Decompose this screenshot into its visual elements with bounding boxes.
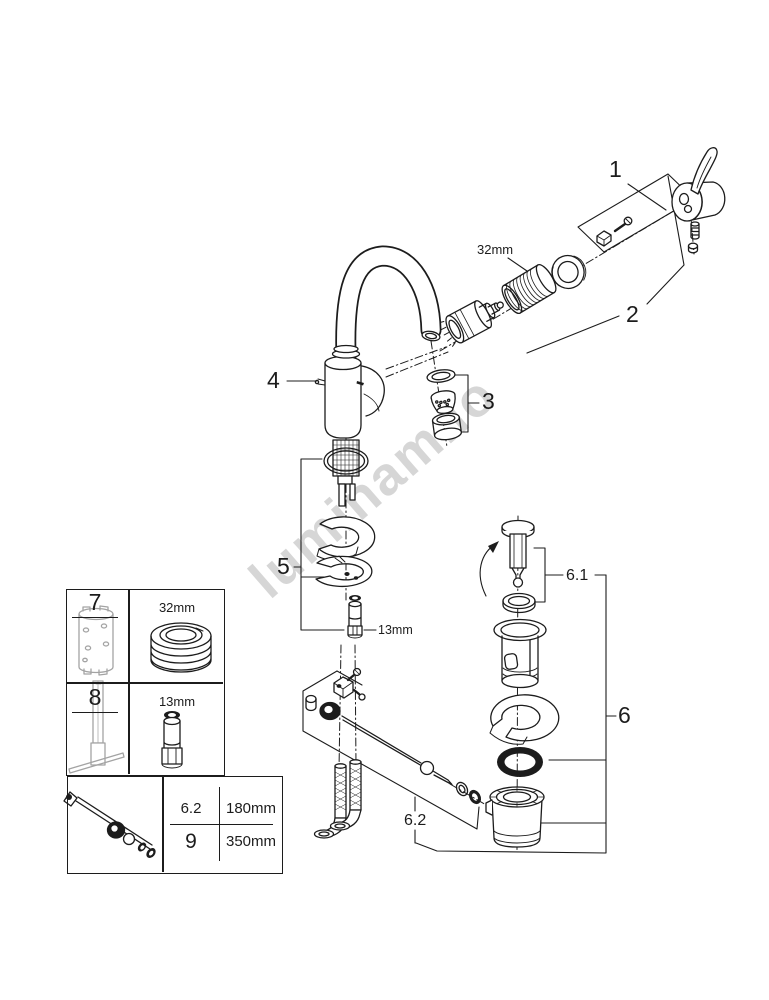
handle-cap-nut (689, 243, 698, 253)
cartridge (437, 290, 510, 348)
faucet-body (315, 256, 440, 438)
popup-plug (480, 521, 534, 597)
callout-3: 3 (482, 390, 495, 413)
exploded-parts-diagram: luminam.io (0, 0, 769, 1000)
aerator-parts (426, 368, 462, 441)
length-ref-6-2: 6.2 (166, 801, 216, 816)
tool-8-size: 13mm (132, 695, 222, 708)
fixing-screw-and-nut (597, 217, 632, 246)
supply-hoses (315, 760, 362, 838)
popup-rod-assembly (306, 669, 484, 807)
callout-1: 1 (609, 158, 622, 181)
callout-6: 6 (618, 704, 631, 727)
drain-lower-body (486, 787, 544, 847)
drain-o-ring (497, 747, 543, 777)
size-label-32mm: 32mm (477, 243, 513, 256)
plug-seal-ring (503, 594, 535, 613)
callout-4: 4 (267, 369, 280, 392)
callout-2: 2 (624, 303, 641, 326)
tool-7-size: 32mm (132, 601, 222, 614)
length-value-350mm: 350mm (226, 834, 276, 849)
length-ref-9: 9 (166, 831, 216, 852)
size-label-13mm: 13mm (378, 624, 413, 637)
rotation-arrow (480, 543, 497, 596)
callout-5: 5 (277, 555, 290, 578)
tool-7-number: 7 (72, 591, 118, 618)
mounting-parts (316, 440, 375, 638)
tool-8-number: 8 (72, 686, 118, 713)
threaded-sleeve-32mm (498, 262, 559, 316)
handle-assembly (672, 148, 725, 253)
drain-upper-body (494, 620, 546, 688)
drain-gasket (490, 695, 559, 744)
callout-6-1: 6.1 (566, 568, 588, 584)
callout-6-2: 6.2 (402, 813, 428, 829)
mounting-clamp (316, 556, 372, 586)
mounting-stud-13mm (348, 595, 362, 638)
length-value-180mm: 180mm (226, 801, 276, 816)
